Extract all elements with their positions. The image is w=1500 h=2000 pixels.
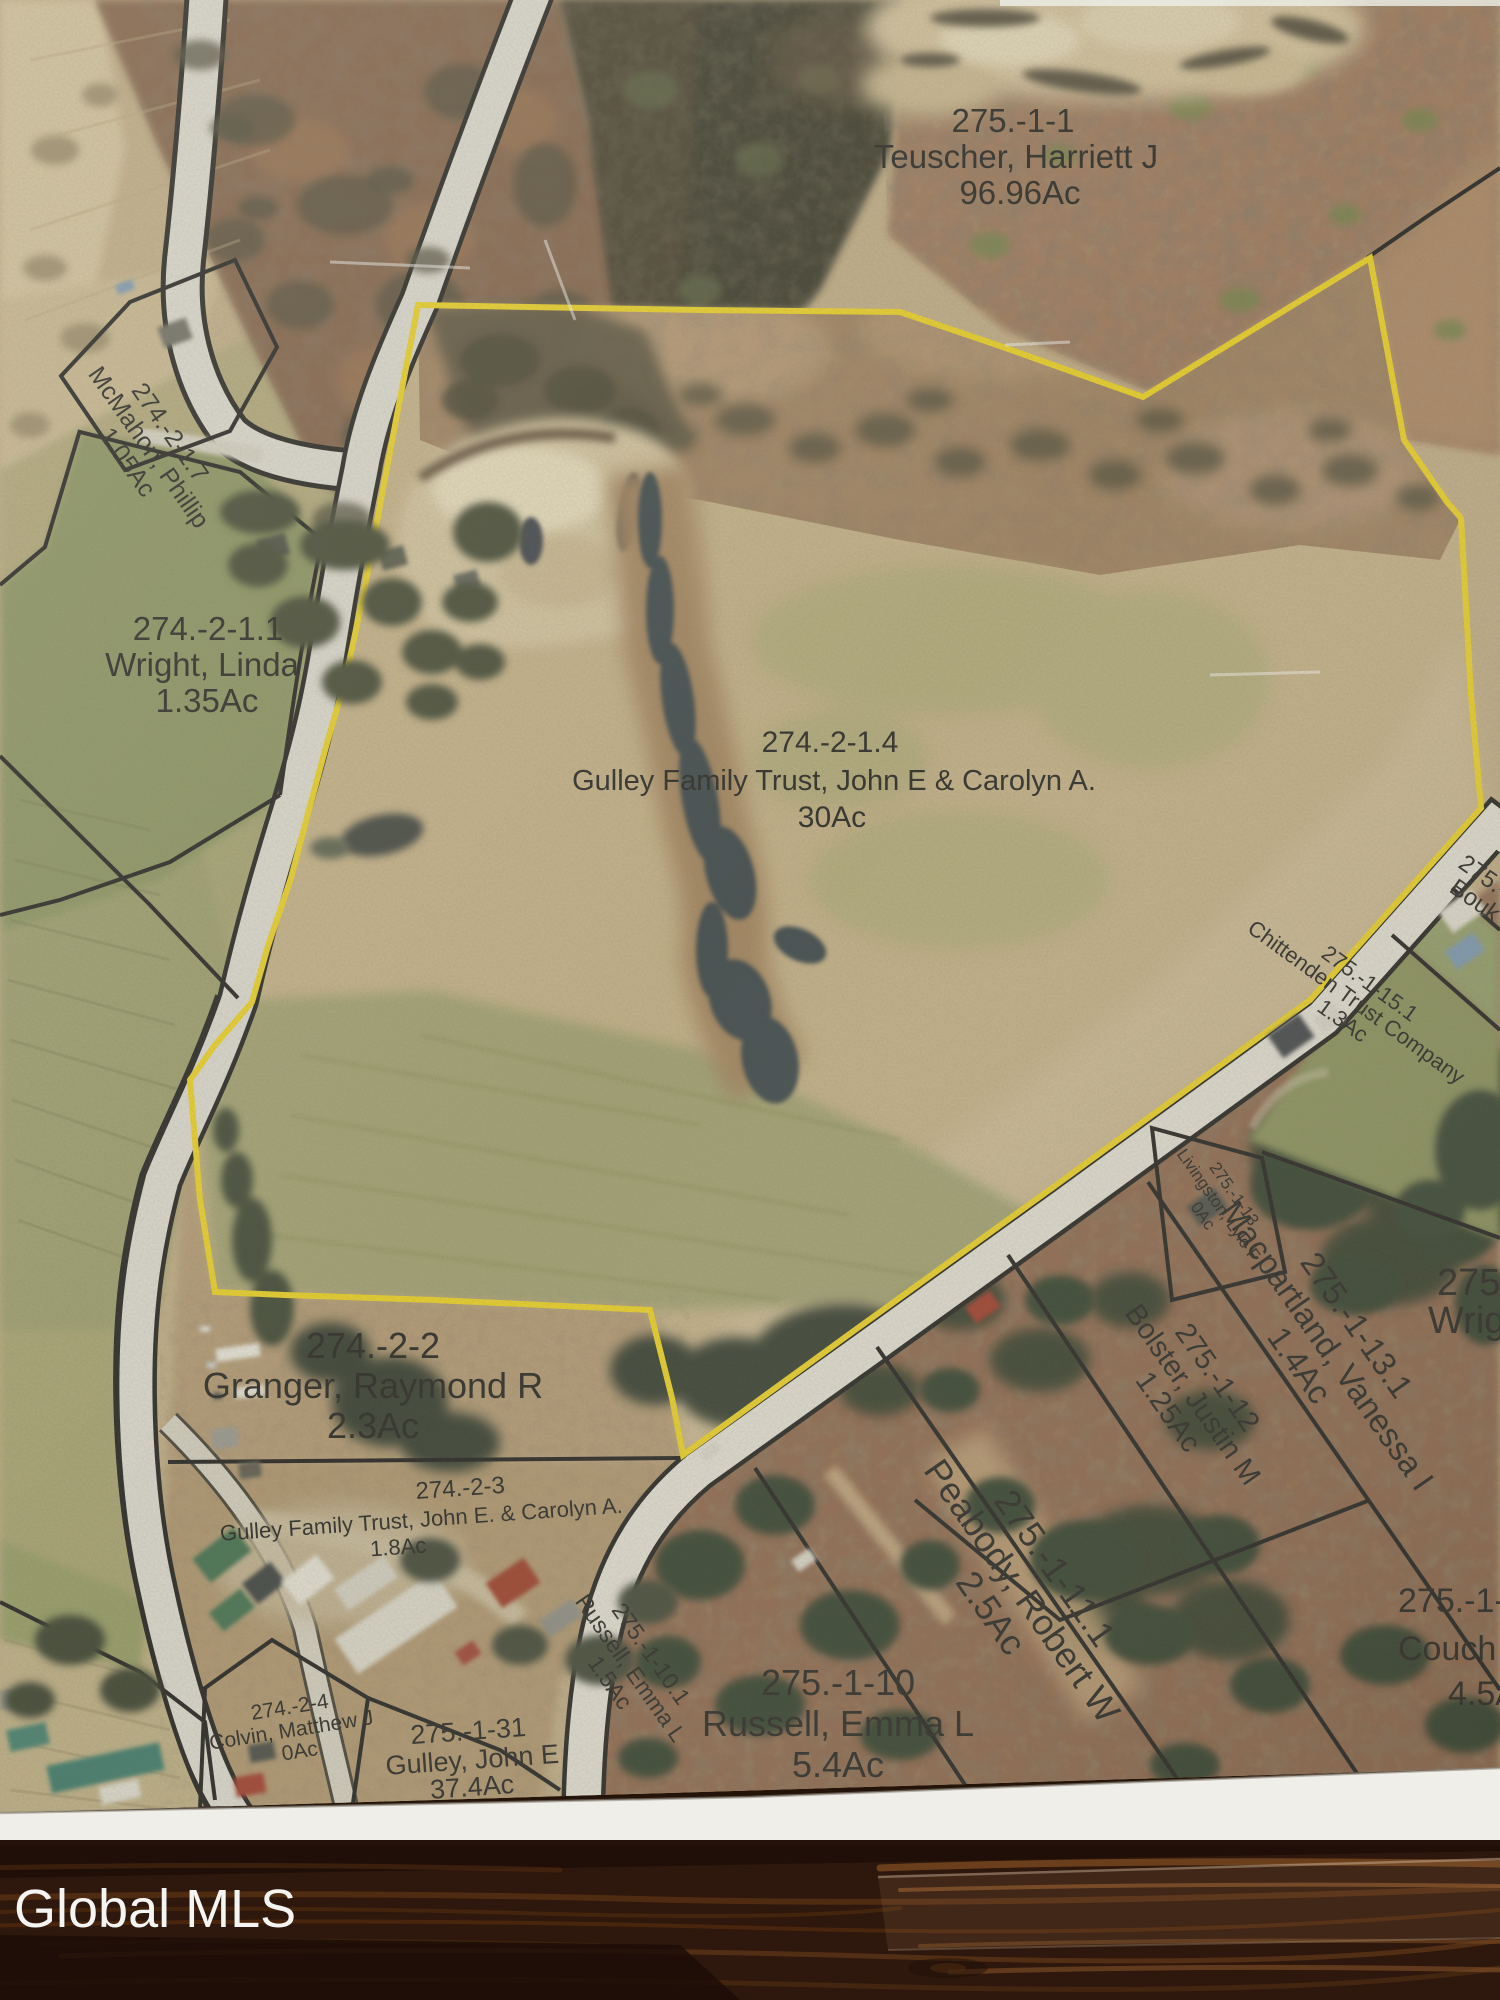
svg-text:Global MLS: Global MLS — [14, 1879, 296, 1939]
